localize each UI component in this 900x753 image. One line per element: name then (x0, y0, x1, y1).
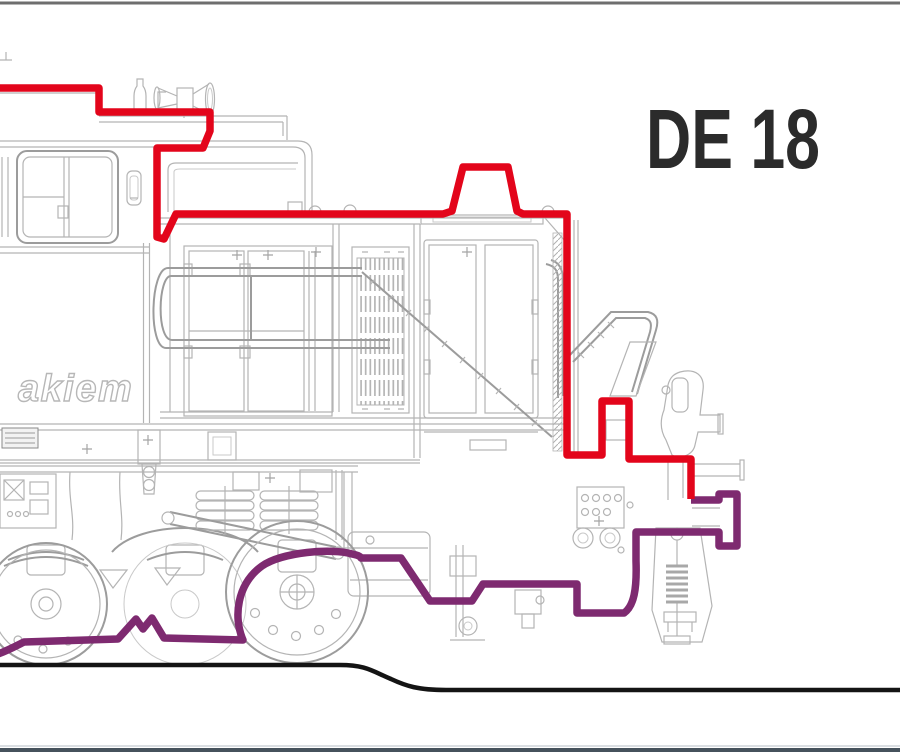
antenna (134, 79, 146, 112)
bolt-cross-marks (82, 247, 604, 526)
front-step-assembly (652, 528, 712, 644)
red-upper-outline (0, 88, 691, 499)
hood-doors-left (184, 246, 332, 416)
front-sockets-panel (573, 487, 633, 553)
akiem-logo: akiem (18, 368, 133, 410)
diagram-canvas: DE 18 akiem (0, 0, 900, 753)
model-title: DE 18 (646, 92, 820, 186)
front-ladder (568, 312, 657, 440)
purple-lower-outline (0, 494, 737, 655)
coil-springs (196, 491, 318, 530)
buffer-shank (692, 508, 720, 526)
far-buffer (693, 460, 744, 480)
hood-front-hatch-strip (553, 233, 562, 451)
door-handle (127, 171, 141, 205)
hood-doors-right (424, 240, 538, 450)
raised-roof-box (168, 163, 302, 212)
locomotive-technical-drawing: DE 18 akiem (0, 0, 900, 753)
hanging-bracket (515, 590, 544, 628)
ventilation-grille (352, 247, 409, 413)
data-plate (2, 428, 38, 448)
underframe (0, 424, 566, 492)
equipment-box-under-cab (0, 474, 56, 528)
wheel-right (226, 521, 368, 663)
cab-window (2, 151, 118, 243)
ground-line (0, 665, 900, 690)
